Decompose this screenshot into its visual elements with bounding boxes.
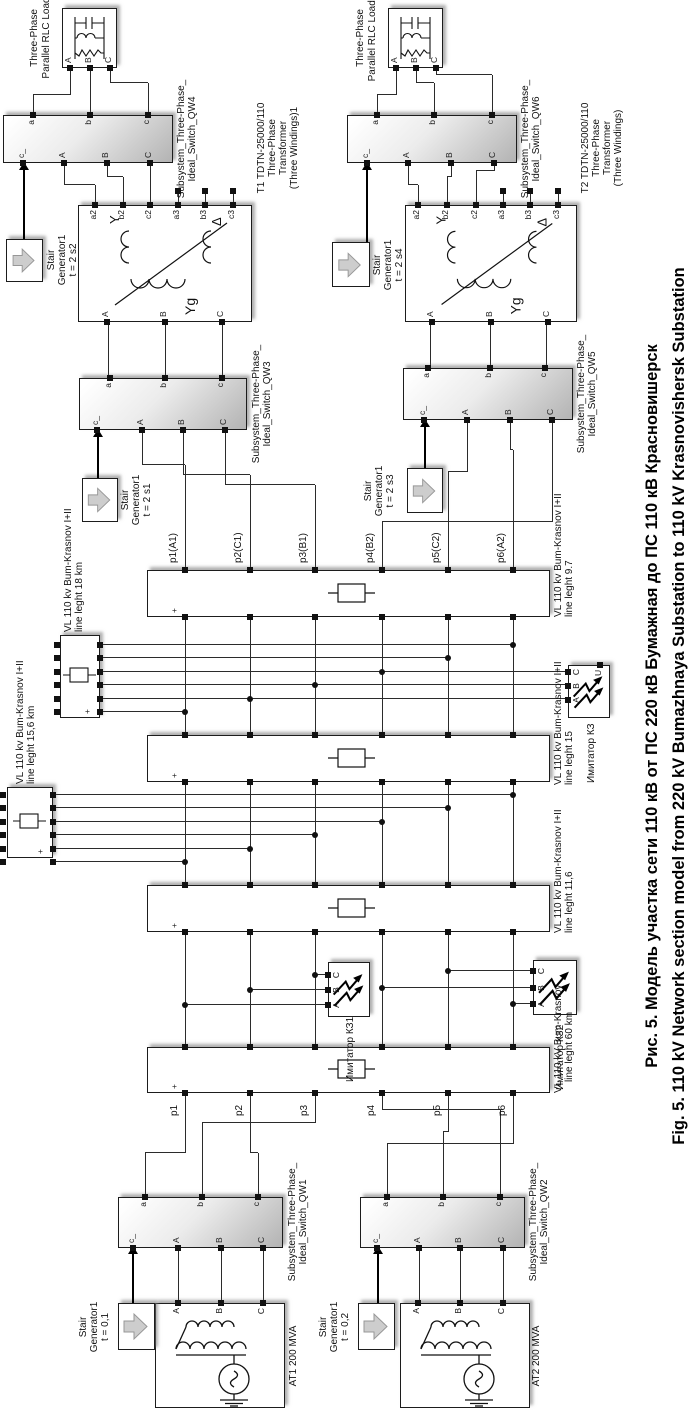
port-square [510,882,516,888]
port-square [379,929,385,935]
wire [202,1123,203,1197]
port-square [374,112,380,118]
port-label: c [142,120,151,124]
source-block-at1[interactable] [155,1303,285,1408]
port-square [374,1245,380,1251]
wire [110,82,148,83]
port-square [445,929,451,935]
port-label: a [27,120,36,125]
port-square [104,160,110,166]
line-18km-len: line leght 18 km [74,562,85,632]
wire [107,176,123,177]
bus-label-p1: p1 [169,1105,180,1116]
port-square [416,1245,422,1251]
port-square [247,567,253,573]
wire [33,94,70,95]
port-square [255,1194,261,1200]
junction-dot [379,985,385,991]
junction-dot [510,642,516,648]
qw1-label-2: Ideal_Switch_QW1 [298,1179,309,1264]
port-square [0,846,6,852]
port-square [247,614,253,620]
port-square [464,417,470,423]
port-square [500,202,506,208]
wire [448,970,533,971]
port-label: b3 [524,210,533,219]
port-label: C [430,57,439,63]
port-square [182,614,188,620]
line-section-icon [328,747,376,769]
port-square [247,1044,253,1050]
wire [53,848,250,849]
wire [222,322,223,378]
winding-label-yg: Yg [508,297,524,314]
port-label: a3 [172,210,181,219]
sg2-label-3: t = 0,2 [340,1313,351,1341]
port-square [92,202,98,208]
port-square [500,1245,506,1251]
port-square [445,732,451,738]
wire [408,184,418,185]
qw3-label-2: Ideal_Switch_QW3 [262,361,273,446]
port-square [162,375,168,381]
figure-caption-ru: Рис. 5. Модель участка сети 110 кВ от ПС… [643,0,662,1412]
port-square [364,160,370,166]
wire [100,671,568,672]
port-square [0,792,6,798]
sg5-label-1: Stair [46,250,57,271]
qw1-label-1: Subsystem_Three-Phase_ [287,1163,298,1281]
wire [100,684,568,685]
wire [108,322,109,378]
port-square [507,417,513,423]
port-square [491,160,497,166]
port-label: C [497,1237,506,1243]
port-square [218,1300,224,1306]
port-square [247,1090,253,1096]
line-block-18km[interactable] [60,635,100,718]
plus-mark: + [170,1084,179,1089]
port-square [473,202,479,208]
wire [53,821,382,822]
stair-generator-qw6[interactable] [332,242,370,287]
port-square [510,929,516,935]
source-block-at2[interactable] [400,1303,530,1408]
load2-title-1: Three-Phase [355,9,366,67]
stair-generator-qw3[interactable] [82,478,118,522]
port-label: b3 [199,210,208,219]
qw4-label-2: Ideal_Switch_QW4 [187,96,198,181]
port-label: B [332,987,341,993]
line-section-icon [63,667,97,683]
port-square [489,112,495,118]
port-label: C [257,1237,266,1243]
port-square [145,112,151,118]
stair-arrow-icon [7,240,41,281]
wire [377,94,396,95]
port-label: c_ [127,1234,136,1243]
port-label: B [445,152,454,158]
t2-label-1: T2 TDTN-25000/110 [580,103,591,194]
port-square [0,859,6,865]
plus-mark: + [36,849,45,854]
wire [123,177,124,205]
port-square [555,202,561,208]
three-winding-transformer-icon: Yg Y Δ [79,206,250,321]
wire [447,177,448,205]
port-label: C [546,409,555,415]
port-square [312,929,318,935]
port-square [230,202,236,208]
port-label: b [428,120,437,125]
port-square [421,417,427,423]
port-label: A [172,1237,181,1243]
port-label: a2 [89,210,98,219]
port-square [107,375,113,381]
port-label: b [196,1202,205,1207]
port-label: C [216,311,225,317]
port-square [444,202,450,208]
port-square [510,614,516,620]
port-square [379,567,385,573]
port-square [312,779,318,785]
wire [145,1152,185,1153]
port-square [50,792,56,798]
wire [503,1248,504,1303]
port-square [445,1044,451,1050]
three-phase-source-icon [401,1304,528,1407]
port-square [97,709,103,715]
line-15-len: line leght 15 [564,731,575,785]
bus-label-p5c2: p5(C2) [431,532,442,563]
port-label: A [461,409,470,415]
port-square [222,427,228,433]
port-label: A [413,1237,422,1243]
port-square [50,805,56,811]
wire [148,83,149,115]
port-square [260,1245,266,1251]
port-label: U [594,670,603,676]
port-label: b [159,383,168,388]
port-square [415,1300,421,1306]
port-square [510,779,516,785]
port-label: B [159,311,168,317]
port-square [182,882,188,888]
bus-label-p4: p4 [366,1105,377,1116]
port-label: B [177,419,186,425]
port-square [312,567,318,573]
junction-dot [312,682,318,688]
wire [202,1122,315,1123]
t1-label-4: (Three Windings)1 [289,107,300,189]
port-label: A [537,1001,546,1007]
wire [387,1143,513,1144]
port-square [597,662,603,668]
junction-dot [510,1001,516,1007]
port-square [429,319,435,325]
port-square [445,567,451,573]
load1-title-1: Three-Phase [29,9,40,67]
sg6-label-1: Stair [372,255,383,276]
stair-generator-qw2[interactable] [358,1303,395,1350]
fault-kz1-label: Имитатор КЗ1 [345,1017,356,1082]
port-square [0,805,6,811]
bus-label-p1a1: p1(A1) [168,533,179,563]
port-label: b [437,1202,446,1207]
port-label: C [488,152,497,158]
sg3-label-3: t = 2 s1 [142,483,153,516]
line-11-6-len: line leght 11,6 [564,871,575,933]
port-label: c [494,1202,503,1206]
sg1-label-2: Generator1 [89,1302,100,1353]
port-square [20,160,26,166]
junction-dot [510,792,516,798]
junction-dot [247,846,253,852]
wire [500,1110,501,1197]
port-square [393,65,399,71]
qw6-label-1: Subsystem_Three-Phase_ [520,80,531,198]
port-label: b2 [441,210,450,219]
port-square [97,669,103,675]
port-label: B [215,1308,224,1314]
port-square [182,732,188,738]
wire [53,794,513,795]
figure-caption-en: Fig. 5. 110 kV Network section model fro… [670,0,689,1412]
port-label: B [504,409,513,415]
three-winding-transformer-icon: Yg Y Δ [406,206,575,321]
port-square [457,1300,463,1306]
plus-mark: + [170,608,179,613]
port-square [500,188,506,194]
wire [490,322,491,368]
port-label: b [484,373,493,378]
stair-arrow-icon [333,244,367,286]
wire [183,474,250,475]
wire [408,163,409,185]
port-label: B [572,683,581,689]
plus-mark: + [170,923,179,928]
port-square [379,779,385,785]
port-label: a3 [497,210,506,219]
port-square [130,1245,136,1251]
port-label: B [537,985,546,991]
wire [90,68,91,115]
port-square [379,732,385,738]
port-square [61,160,67,166]
wire [165,322,166,378]
qw5-label-1: Subsystem_Three-Phase_ [576,335,587,453]
wire [142,464,185,465]
bus-label-p2: p2 [234,1105,245,1116]
port-square [50,832,56,838]
signal-arrow [23,168,25,239]
signal-arrow [97,435,99,478]
port-square [147,160,153,166]
port-label: C [542,311,551,317]
wire [250,989,328,990]
port-label: A [58,152,67,158]
sg6-label-3: t = 2 s4 [394,248,405,281]
signal-arrow [132,1252,134,1303]
bus-label-p3b1: p3(B1) [298,533,309,563]
port-square [312,882,318,888]
wire [510,420,511,450]
qw2-label-1: Subsystem_Three-Phase_ [528,1163,539,1281]
port-square [445,614,451,620]
sg4-label-1: Stair [363,481,374,502]
junction-dot [312,972,318,978]
line-section-icon [328,897,376,919]
port-square [202,202,208,208]
junction-dot [182,709,188,715]
junction-dot [445,968,451,974]
port-square [120,202,126,208]
port-square [510,567,516,573]
port-square [87,112,93,118]
port-square [54,642,60,648]
port-label: B [454,1237,463,1243]
port-square [97,682,103,688]
line-block-15-6km[interactable] [7,787,53,858]
port-square [50,859,56,865]
wire [430,322,431,368]
port-square [379,1044,385,1050]
signal-arrow [377,1252,379,1303]
transformer-block-t2[interactable]: Yg Y Δ [405,205,577,322]
wire [53,834,315,835]
line-9-7-len: line leght 9.7 [564,560,575,617]
junction-dot [182,1002,188,1008]
port-square [497,1194,503,1200]
port-square [312,1044,318,1050]
wire [448,471,467,472]
port-square [147,202,153,208]
junction-dot [445,805,451,811]
line-11-6-name: VL 110 kv Bum-Krasnov I+II [553,809,564,933]
port-square [162,319,168,325]
qw4-label-1: Subsystem_Three-Phase_ [176,80,187,198]
transformer-block-t1[interactable]: Yg Y Δ [78,205,252,322]
wire [436,74,492,75]
wire [382,987,533,988]
bus-label-p6a2: p6(A2) [496,533,507,563]
winding-label-delta: Δ [209,217,224,226]
stair-generator-qw5[interactable] [407,468,443,513]
wire [53,861,185,862]
port-square [555,188,561,194]
junction-dot [312,832,318,838]
junction-dot [379,819,385,825]
wire [460,1248,461,1303]
port-square [54,682,60,688]
port-square [219,319,225,325]
port-square [182,929,188,935]
port-square [97,655,103,661]
wire [263,1248,264,1303]
bus-label-p5: p5 [432,1105,443,1116]
wire [476,170,494,171]
port-square [247,882,253,888]
port-square [50,819,56,825]
bus-label-p2c1: p2(C1) [233,532,244,563]
figure-page: Yg Y Δ Yg Y Δ [0,0,699,1412]
port-label: c3 [227,210,236,219]
port-square [97,642,103,648]
fault-kz-label: Имитатор КЗ [586,723,597,783]
port-square [445,1090,451,1096]
port-square [433,65,439,71]
line-block-9-7[interactable] [147,570,550,617]
port-label: A [64,57,73,63]
sg1-label-3: t = 0,1 [100,1313,111,1341]
load2-title-2: Parallel RLC Load1 [367,0,378,81]
port-square [94,427,100,433]
wire [225,430,226,485]
port-square [542,365,548,371]
port-square [415,202,421,208]
t1-label-3: Transformer [278,121,289,175]
port-square [54,655,60,661]
port-square [488,319,494,325]
wire [467,420,468,472]
port-label: A [172,1308,181,1314]
junction-dot [247,987,253,993]
port-square [142,1194,148,1200]
port-square [0,819,6,825]
stair-generator-qw1[interactable] [118,1303,155,1350]
port-square [527,202,533,208]
wire [225,484,315,485]
port-square [445,779,451,785]
port-square [175,1300,181,1306]
port-square [312,1090,318,1096]
junction-dot [247,696,253,702]
qw6-label-2: Ideal_Switch_QW6 [531,96,542,181]
line-block-11-6[interactable] [147,885,550,932]
stair-arrow-icon [408,470,441,512]
port-square [87,65,93,71]
port-square [67,65,73,71]
wire [70,68,71,95]
port-label: a2 [412,210,421,219]
line-block-15[interactable] [147,735,550,782]
port-square [312,614,318,620]
t2-label-3: Transformer [602,121,613,175]
junction-dot [379,669,385,675]
port-square [182,567,188,573]
stair-generator-qw4[interactable] [6,239,43,282]
port-square [139,427,145,433]
simulink-model-canvas: Yg Y Δ Yg Y Δ [0,0,699,1412]
port-label: c_ [91,416,100,425]
wire [434,83,435,115]
port-square [549,417,555,423]
wire [145,1153,146,1197]
wire [258,1153,259,1197]
port-square [54,669,60,675]
port-label: c [216,383,225,387]
port-square [247,929,253,935]
port-square [510,1044,516,1050]
wire [185,1004,328,1005]
stair-arrow-icon [83,479,116,521]
port-label: a [139,1202,148,1207]
port-square [425,365,431,371]
port-label: C [104,57,113,63]
port-label: C [497,1308,506,1314]
wire [100,698,568,699]
port-label: c_ [371,1234,380,1243]
